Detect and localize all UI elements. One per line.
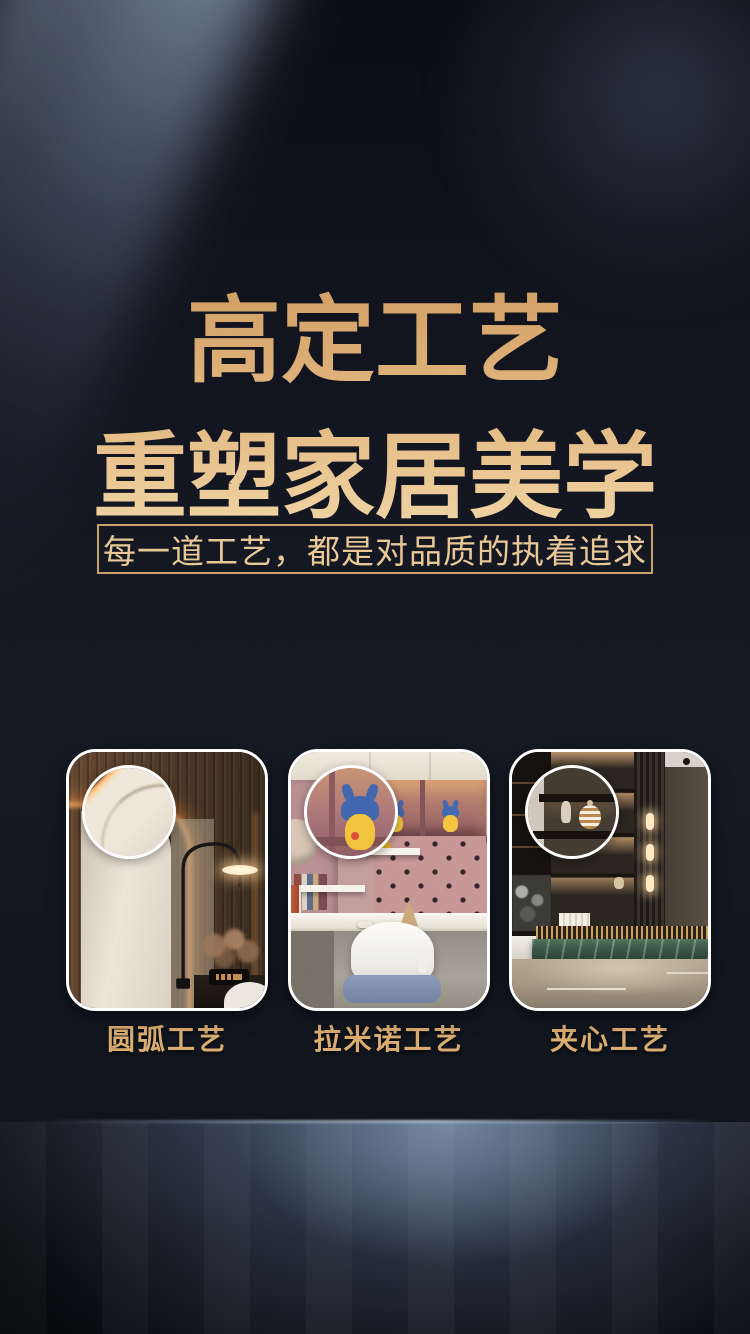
craft-card-row: 圆弧工艺 — [66, 749, 711, 1058]
craft-card-lamello: 拉米诺工艺 — [288, 749, 490, 1058]
detail-zoom-circle-icon — [304, 765, 398, 859]
ornament — [614, 877, 624, 889]
craft-photo-sandwich — [509, 749, 711, 1011]
craft-card-sandwich: 夹心工艺 — [509, 749, 711, 1058]
vignette — [0, 0, 750, 1334]
title-line-1: 高定工艺 — [0, 273, 750, 409]
detail-zoom-circle-icon — [525, 765, 619, 859]
floor-glow — [0, 1122, 750, 1334]
green-marble-plinth — [532, 939, 708, 959]
lamp-ring-light — [222, 865, 258, 875]
floor-highlight-line — [30, 1120, 720, 1123]
pendant-light-icon — [646, 813, 654, 830]
craft-photo-lamello — [288, 749, 490, 1011]
patterned-sofa — [512, 875, 551, 931]
chair-cushion — [343, 975, 441, 1003]
page-title: 高定工艺 重塑家居美学 — [0, 273, 750, 546]
craft-label-2: 拉米诺工艺 — [288, 1018, 490, 1058]
craft-label-1: 圆弧工艺 — [66, 1018, 268, 1058]
tagline-text: 每一道工艺，都是对品质的执着追求 — [103, 525, 647, 573]
noise-texture — [0, 0, 750, 1334]
pendant-light-icon — [646, 875, 654, 892]
pendant-light-icon — [646, 844, 654, 861]
craft-card-rounded-corner: 圆弧工艺 — [66, 749, 268, 1058]
polished-floor — [512, 959, 708, 1008]
detail-zoom-circle-icon — [82, 765, 176, 859]
striped-vase-zoom-icon — [579, 805, 601, 829]
pikachu-figure-icon — [442, 806, 459, 832]
craft-photo-rounded-corner — [66, 749, 268, 1011]
craft-label-3: 夹心工艺 — [509, 1018, 711, 1058]
pikachu-figure-zoom-icon — [341, 792, 379, 850]
tagline-box: 每一道工艺，都是对品质的执着追求 — [97, 524, 653, 574]
promo-page: 高定工艺 重塑家居美学 每一道工艺，都是对品质的执着追求 — [0, 0, 750, 1334]
